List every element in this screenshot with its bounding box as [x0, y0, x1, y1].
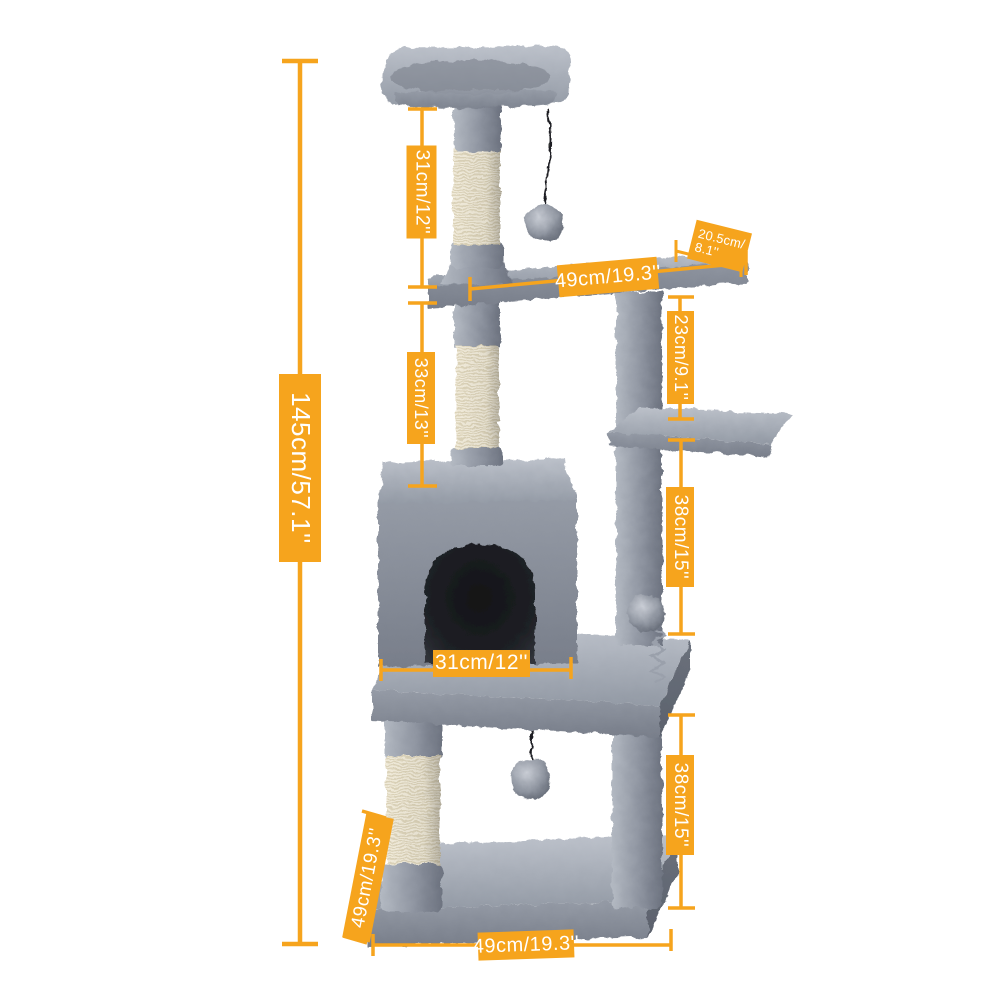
dimension-label-right-post-38-upper: 38cm/15'': [666, 487, 694, 587]
dimension-label-base-width: 49cm/19.3'': [478, 929, 575, 960]
cat-tree-illustration: [0, 0, 1000, 1000]
hanging-pom-toy-upper: [525, 108, 563, 242]
bottom-left-scratching-post: [381, 700, 442, 912]
dimension-label-right-post-38-lower: 38cm/15'': [666, 755, 694, 855]
product-dimension-image: 145cm/57.1'' 31cm/12'' 49cm/19.3'' 20.5c…: [0, 0, 1000, 1000]
dimension-label-condo-width: 31cm/12'': [433, 650, 530, 677]
condo-entrance: [425, 544, 535, 664]
shelf-depth-line2: 8.1'': [693, 240, 720, 259]
dimension-label-total-height: 145cm/57.1'': [279, 374, 321, 562]
top-perch: [382, 46, 571, 108]
dimension-label-middle-post: 33cm/13'': [407, 352, 435, 444]
top-post: [441, 100, 513, 284]
dimension-label-right-post-23: 23cm/9.1'': [667, 311, 694, 404]
dimension-label-top-post: 31cm/12'': [407, 146, 437, 239]
bottom-right-post: [612, 716, 662, 908]
right-post: [616, 292, 662, 645]
centre-post: [451, 299, 503, 466]
condo-house: [378, 458, 577, 667]
